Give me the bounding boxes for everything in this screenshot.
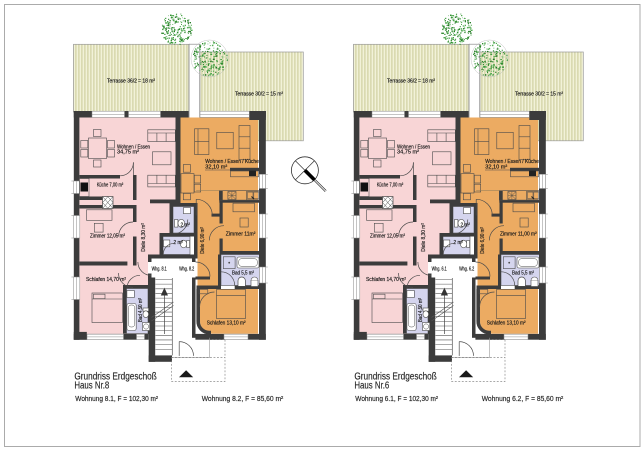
- svg-text:2 m²: 2 m²: [174, 240, 184, 246]
- svg-text:Zimmer 12,05 m²: Zimmer 12,05 m²: [90, 233, 125, 239]
- svg-text:Terrasse 30/2 = 15 m²: Terrasse 30/2 = 15 m²: [235, 91, 283, 97]
- svg-text:Terrasse 36/2 = 18 m²: Terrasse 36/2 = 18 m²: [107, 78, 155, 84]
- svg-text:2 m²: 2 m²: [454, 240, 464, 246]
- svg-text:Whg. 8.2: Whg. 8.2: [179, 267, 194, 273]
- svg-text:Bad 4,50 m²: Bad 4,50 m²: [418, 298, 424, 322]
- svg-text:2 m²: 2 m²: [461, 223, 471, 229]
- svg-text:Haus Nr.6: Haus Nr.6: [354, 381, 389, 392]
- svg-text:Schlafen 14,70 m²: Schlafen 14,70 m²: [86, 277, 126, 283]
- svg-text:34,75 m²: 34,75 m²: [397, 150, 419, 156]
- svg-text:Terrasse 36/2 = 18 m²: Terrasse 36/2 = 18 m²: [387, 78, 435, 84]
- svg-text:Zimmer 11,00 m²: Zimmer 11,00 m²: [500, 232, 537, 238]
- svg-text:Schlafen 13,10 m²: Schlafen 13,10 m²: [207, 320, 246, 326]
- svg-text:Terrasse 30/2 = 15 m²: Terrasse 30/2 = 15 m²: [515, 91, 563, 97]
- svg-text:34,75 m²: 34,75 m²: [117, 150, 139, 156]
- svg-text:Whg. 6.1: Whg. 6.1: [432, 267, 447, 273]
- svg-text:Bad 5,5 m²: Bad 5,5 m²: [232, 270, 254, 276]
- svg-text:2 m²: 2 m²: [181, 223, 191, 229]
- svg-text:Diele 8,30 m²: Diele 8,30 m²: [141, 223, 147, 252]
- svg-text:Küche 7,00 m²: Küche 7,00 m²: [97, 183, 124, 189]
- svg-text:Diele 6,90 m²: Diele 6,90 m²: [200, 227, 206, 254]
- svg-text:Wohnung 8.2, F = 85,60 m²: Wohnung 8.2, F = 85,60 m²: [202, 394, 284, 403]
- svg-text:Diele 8,30 m²: Diele 8,30 m²: [421, 223, 427, 252]
- svg-text:Wohnung 6.2, F = 85,60 m²: Wohnung 6.2, F = 85,60 m²: [482, 394, 564, 403]
- svg-text:Schlafen 14,70 m²: Schlafen 14,70 m²: [366, 277, 406, 283]
- svg-text:Haus Nr.8: Haus Nr.8: [74, 381, 109, 392]
- svg-text:Diele 6,90 m²: Diele 6,90 m²: [480, 227, 486, 254]
- svg-text:32,10 m²: 32,10 m²: [485, 165, 507, 171]
- svg-text:Bad 5,5 m²: Bad 5,5 m²: [512, 270, 534, 276]
- svg-text:Whg. 8.1: Whg. 8.1: [152, 267, 167, 273]
- svg-text:Wohnung 8.1, F = 102,30 m²: Wohnung 8.1, F = 102,30 m²: [75, 394, 158, 403]
- svg-text:Bad 4,50 m²: Bad 4,50 m²: [138, 298, 144, 322]
- svg-text:32,10 m²: 32,10 m²: [205, 165, 227, 171]
- svg-text:Zimmer 11m²: Zimmer 11m²: [226, 232, 256, 238]
- svg-text:Schlafen 13,10 m²: Schlafen 13,10 m²: [487, 320, 526, 326]
- svg-text:Zimmer 12,05 m²: Zimmer 12,05 m²: [370, 233, 405, 239]
- svg-text:Whg. 6.2: Whg. 6.2: [459, 267, 474, 273]
- svg-text:Küche 7,00 m²: Küche 7,00 m²: [377, 183, 404, 189]
- svg-text:Wohnung 6.1, F = 102,30 m²: Wohnung 6.1, F = 102,30 m²: [355, 394, 438, 403]
